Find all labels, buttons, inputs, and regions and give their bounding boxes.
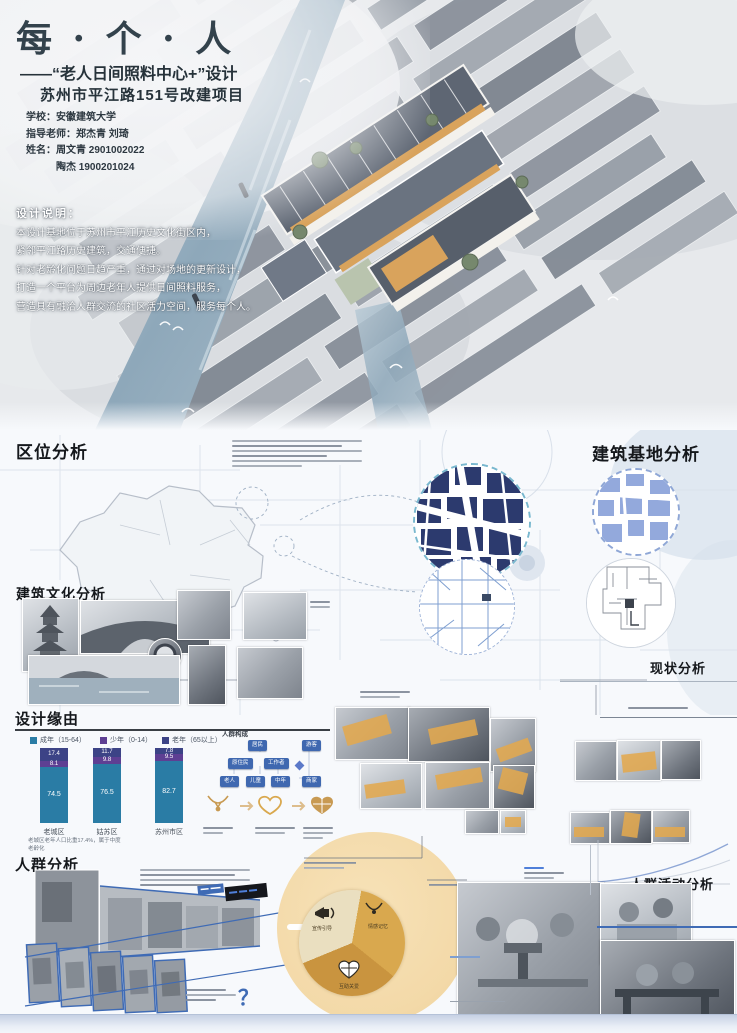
pipa-performer-photo	[188, 645, 226, 705]
divider-line	[560, 681, 737, 682]
blue-rule	[597, 926, 737, 928]
legend-swatch-teal	[30, 737, 37, 744]
status-street-photo	[360, 763, 422, 809]
bar-legend-adult: 成年（15-64）	[30, 735, 86, 745]
section-location-analysis: 区位分析	[16, 438, 88, 463]
credit-author-1: 姓名：周文青 2901002022	[26, 143, 144, 160]
divider-line	[590, 845, 591, 895]
site-block-pattern-circle	[592, 468, 680, 556]
fine-print	[360, 688, 420, 701]
pie-slice-label: 宣传引导	[302, 926, 342, 932]
bar-category: 姑苏区	[77, 827, 137, 837]
arrow-icon	[292, 802, 304, 810]
poster-project-name: 苏州市平江路151号改建项目	[40, 84, 244, 105]
bar-category: 老城区	[24, 827, 84, 837]
legend-swatch-purple	[100, 737, 107, 744]
question-mark: ？	[238, 982, 259, 1012]
bar-footnote: 老城区老年人口比重17.4%，属于中度老龄化	[28, 838, 124, 853]
section-rationale: 设计缘由	[15, 708, 79, 729]
fine-print	[203, 824, 239, 837]
heart-puzzle-icon	[311, 797, 333, 814]
poster-subtitle: ——“老人日间照料中心+”设计	[20, 60, 237, 84]
poster-title: 每 · 个 · 人	[16, 10, 235, 62]
pie-slice-label: 情感记忆	[358, 924, 398, 930]
bar-segment-elder: 17.4	[40, 748, 68, 761]
bar-segment-adult: 76.5	[93, 764, 121, 823]
divider-line	[600, 717, 737, 718]
heart-puzzle-icon	[336, 958, 362, 982]
divider-line	[450, 1001, 505, 1002]
flow-box: 游客	[302, 740, 321, 751]
status-aerial-photo	[335, 707, 410, 760]
stacked-bar-laochengqu: 17.4 8.1 74.5	[40, 748, 68, 823]
status-strip-photo	[661, 740, 701, 780]
legend-swatch-navy	[162, 737, 169, 744]
status-strip-photo	[617, 740, 661, 781]
status-detail-photo	[465, 810, 499, 834]
poster-canvas: 每 · 个 · 人 ——“老人日间照料中心+”设计 苏州市平江路151号改建项目…	[0, 0, 737, 1033]
fine-print	[524, 864, 568, 882]
design-note-heading: 设计说明：	[16, 208, 81, 220]
rationale-underline	[15, 729, 330, 731]
fine-print	[628, 704, 698, 712]
status-aerial-photo	[490, 718, 536, 772]
flow-box: 老人	[220, 776, 239, 787]
credit-school: 学校：安徽建筑大学	[26, 110, 144, 127]
bar-legend-youth: 少年（0-14）	[100, 735, 152, 745]
section-site-analysis: 建筑基地分析	[592, 440, 700, 465]
status-aerial-photo	[408, 707, 490, 762]
fine-print	[186, 986, 236, 1004]
status-street-photo	[493, 765, 535, 809]
flow-box: 中年	[271, 776, 290, 787]
flow-box: 工作者	[264, 758, 289, 769]
poster-bottom-edge	[0, 1014, 737, 1033]
design-note: 设计说明： 本设计基地位于苏州市平江历史文化街区内， 紧邻平江路历史建筑，交通便…	[16, 204, 356, 317]
necklace-icon	[362, 900, 386, 922]
legend-label: 成年（15-64）	[40, 735, 86, 745]
heart-icon	[259, 797, 281, 814]
credit-author-2: 陶杰 1900201024	[26, 160, 144, 177]
flow-box: 儿童	[246, 776, 265, 787]
circle-leaders	[277, 832, 477, 902]
design-note-line: 打造一个平台为周边老年人提供日间照料服务，	[16, 280, 356, 299]
bar-segment-elder: 11.7	[93, 748, 121, 757]
fine-print	[232, 437, 392, 470]
need-transform-icons	[200, 792, 340, 822]
stacked-bar-suzhou: 7.8 9.5 82.7	[155, 748, 183, 823]
megaphone-icon	[312, 903, 338, 925]
embroidery-photo	[243, 592, 307, 640]
section-status-analysis: 现状分析	[650, 658, 706, 677]
canal-panorama-photo	[28, 655, 180, 705]
design-note-line: 针对老龄化问题日趋严重，通过对场地的更新设计，	[16, 262, 356, 281]
design-note-line: 紧邻平江路历史建筑，交通便捷。	[16, 243, 356, 262]
flow-box: 商家	[302, 776, 321, 787]
design-note-line: 本设计基地位于苏州市平江历史文化街区内，	[16, 225, 356, 244]
tea-culture-photo	[237, 647, 303, 699]
credit-advisors: 指导老师：郑杰青 刘琦	[26, 127, 144, 144]
fine-print	[310, 598, 334, 611]
bar-segment-youth: 9.5	[155, 754, 183, 761]
legend-label: 少年（0-14）	[110, 735, 152, 745]
flow-box: 原住民	[228, 758, 253, 769]
credits-block: 学校：安徽建筑大学 指导老师：郑杰青 刘琦 姓名：周文青 2901002022 …	[26, 110, 144, 176]
status-strip-photo	[575, 741, 617, 781]
bar-segment-youth: 9.8	[93, 757, 121, 764]
pie-slice-label: 互助关爱	[329, 984, 369, 990]
site-plan-circle	[586, 558, 676, 648]
stacked-bar-gusuqu: 11.7 9.8 76.5	[93, 748, 121, 823]
street-texture-circle	[419, 559, 515, 655]
activity-photo-bench	[600, 940, 735, 1022]
performers-photo	[177, 590, 231, 640]
status-detail-photo	[500, 810, 526, 834]
bar-segment-adult: 74.5	[40, 767, 68, 823]
bar-segment-youth: 8.1	[40, 761, 68, 767]
design-note-line: 营造具有融洽人群交流的社区活力空间，服务每个人。	[16, 299, 356, 318]
blue-rule	[450, 956, 480, 958]
bar-segment-adult: 82.7	[155, 761, 183, 823]
arrow-icon	[240, 802, 252, 810]
necklace-icon	[208, 796, 228, 811]
status-street-photo	[425, 762, 490, 809]
bar-category: 苏州市区	[139, 827, 199, 837]
flow-box: 居民	[248, 740, 267, 751]
